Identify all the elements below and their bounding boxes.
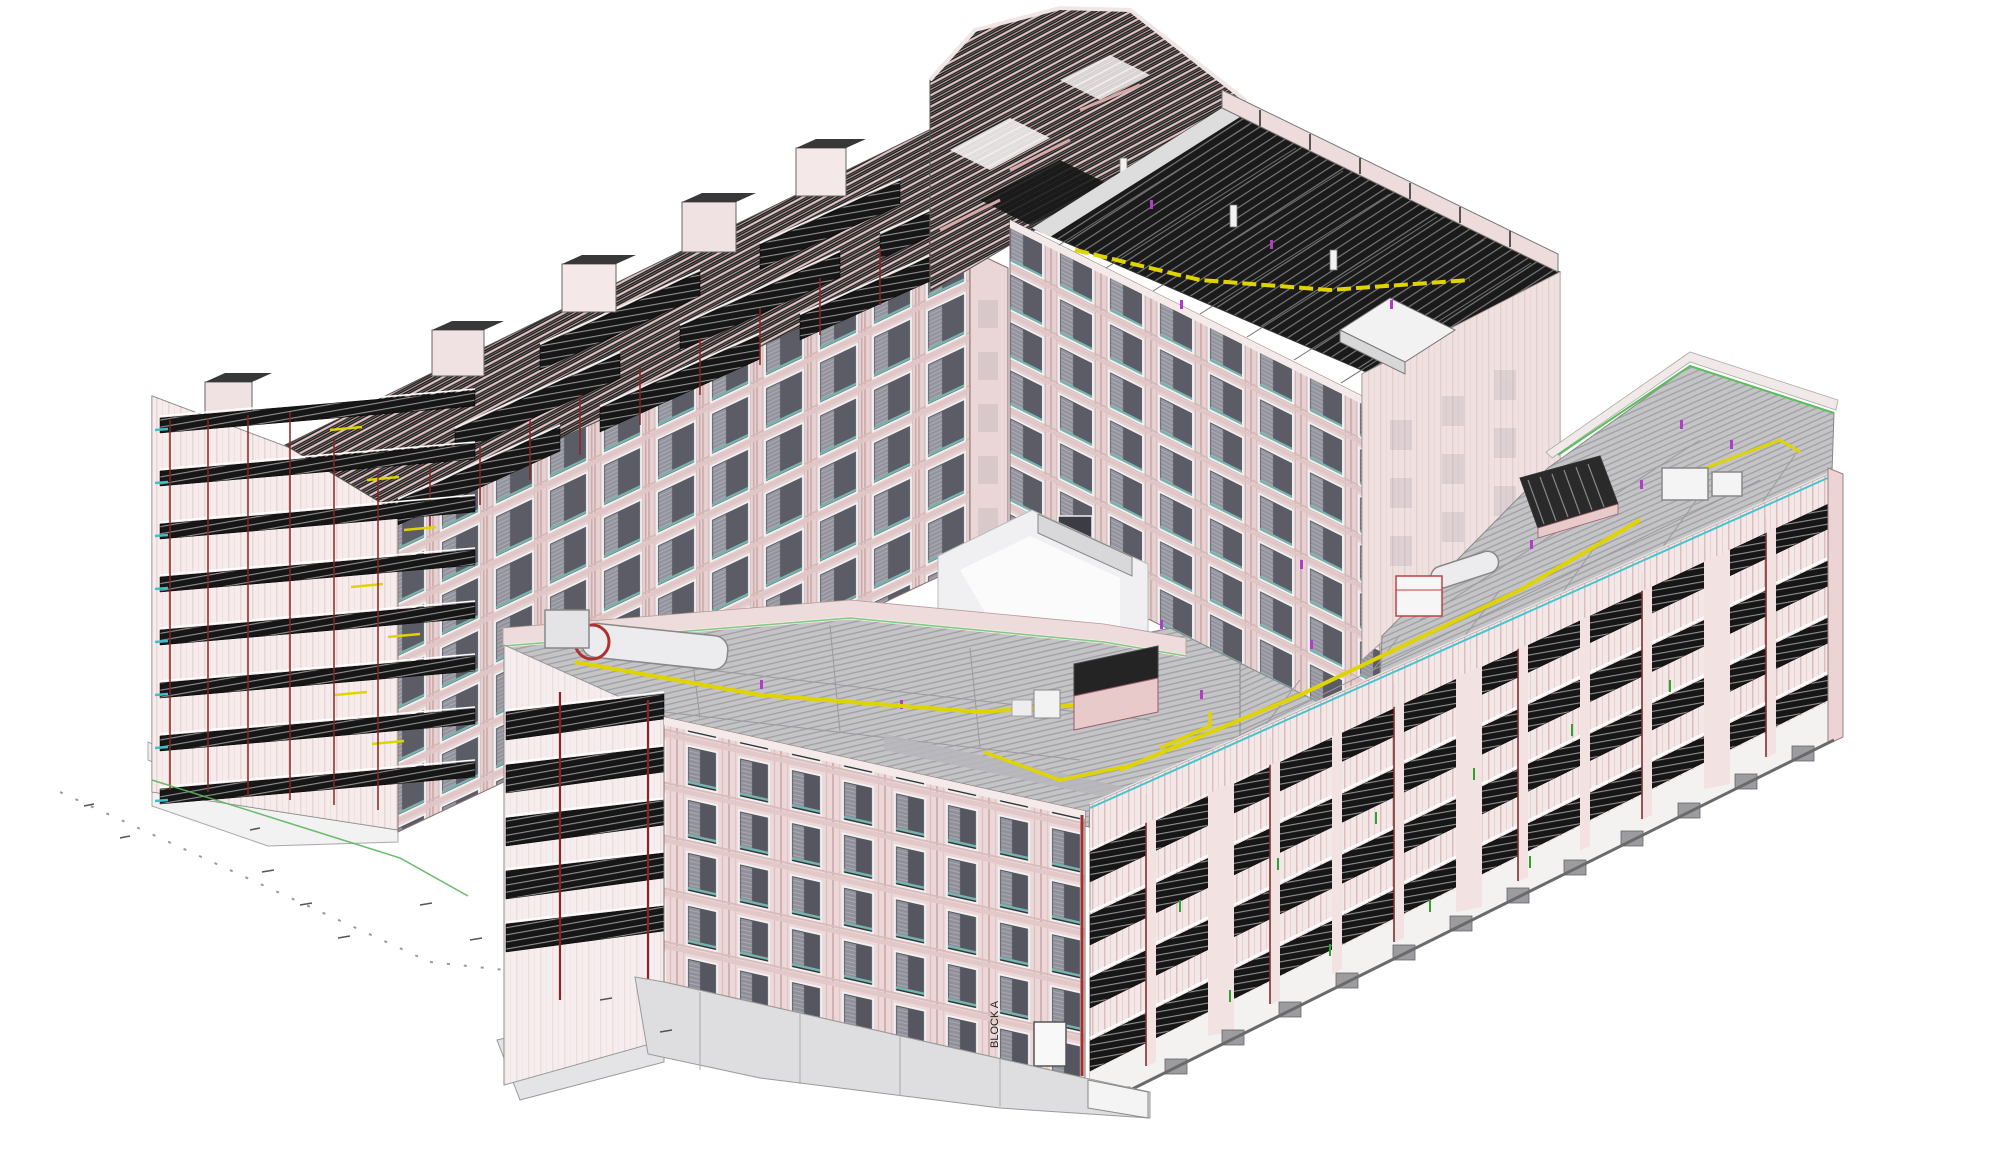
svg-text:BLOCK A: BLOCK A xyxy=(989,1000,1001,1048)
